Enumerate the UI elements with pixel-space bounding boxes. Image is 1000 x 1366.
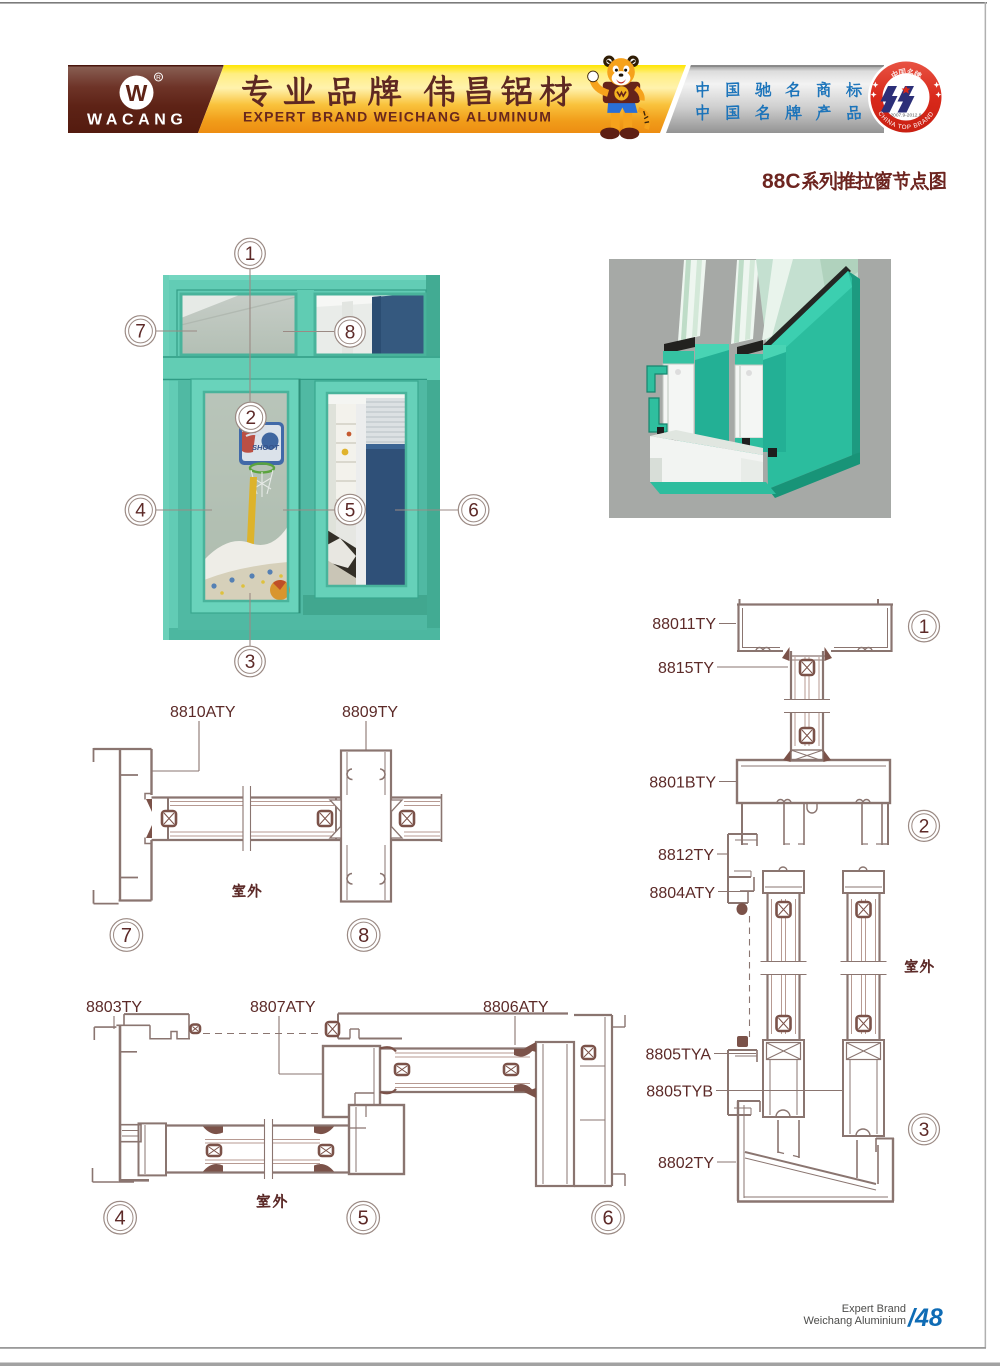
svg-text:8803TY: 8803TY bbox=[86, 999, 142, 1016]
svg-text:6: 6 bbox=[602, 1208, 613, 1230]
svg-text:2: 2 bbox=[246, 408, 257, 429]
svg-text:8809TY: 8809TY bbox=[342, 704, 398, 721]
svg-text:8810ATY: 8810ATY bbox=[170, 704, 236, 721]
svg-text:1: 1 bbox=[919, 617, 930, 638]
svg-text:SHOOT: SHOOT bbox=[252, 443, 280, 452]
svg-text:2007.9-2012.9: 2007.9-2012.9 bbox=[891, 113, 922, 119]
svg-text:W: W bbox=[126, 80, 148, 106]
svg-text:/48: /48 bbox=[907, 1304, 943, 1332]
svg-text:8805TYA: 8805TYA bbox=[645, 1047, 711, 1064]
svg-text:4: 4 bbox=[135, 501, 146, 522]
svg-text:Expert Brand: Expert Brand bbox=[842, 1303, 906, 1315]
svg-text:8801BTY: 8801BTY bbox=[649, 775, 716, 792]
svg-text:WACANG: WACANG bbox=[87, 112, 187, 129]
svg-text:7: 7 bbox=[135, 322, 146, 343]
svg-text:3: 3 bbox=[245, 652, 256, 673]
svg-text:88011TY: 88011TY bbox=[652, 616, 716, 633]
svg-text:5: 5 bbox=[345, 500, 356, 521]
svg-text:8812TY: 8812TY bbox=[658, 847, 714, 864]
svg-text:7: 7 bbox=[121, 925, 132, 947]
svg-text:8: 8 bbox=[358, 925, 369, 947]
svg-text:5: 5 bbox=[358, 1208, 369, 1230]
svg-text:3: 3 bbox=[919, 1120, 930, 1141]
svg-text:2: 2 bbox=[919, 817, 930, 838]
svg-text:8807ATY: 8807ATY bbox=[250, 999, 316, 1016]
svg-text:8805TYB: 8805TYB bbox=[646, 1084, 713, 1101]
svg-text:8804ATY: 8804ATY bbox=[649, 885, 715, 902]
svg-text:Weichang Aluminium: Weichang Aluminium bbox=[803, 1315, 906, 1327]
svg-text:8802TY: 8802TY bbox=[658, 1155, 714, 1172]
svg-text:8806ATY: 8806ATY bbox=[483, 999, 549, 1016]
svg-text:88C: 88C bbox=[762, 170, 801, 193]
svg-text:R: R bbox=[156, 75, 161, 82]
svg-text:8815TY: 8815TY bbox=[658, 660, 714, 677]
svg-text:6: 6 bbox=[468, 501, 479, 522]
svg-text:4: 4 bbox=[115, 1208, 126, 1230]
svg-text:8: 8 bbox=[345, 323, 356, 344]
svg-text:1: 1 bbox=[245, 244, 256, 265]
svg-text:EXPERT BRAND WEICHANG ALUMINUM: EXPERT BRAND WEICHANG ALUMINUM bbox=[243, 109, 552, 125]
